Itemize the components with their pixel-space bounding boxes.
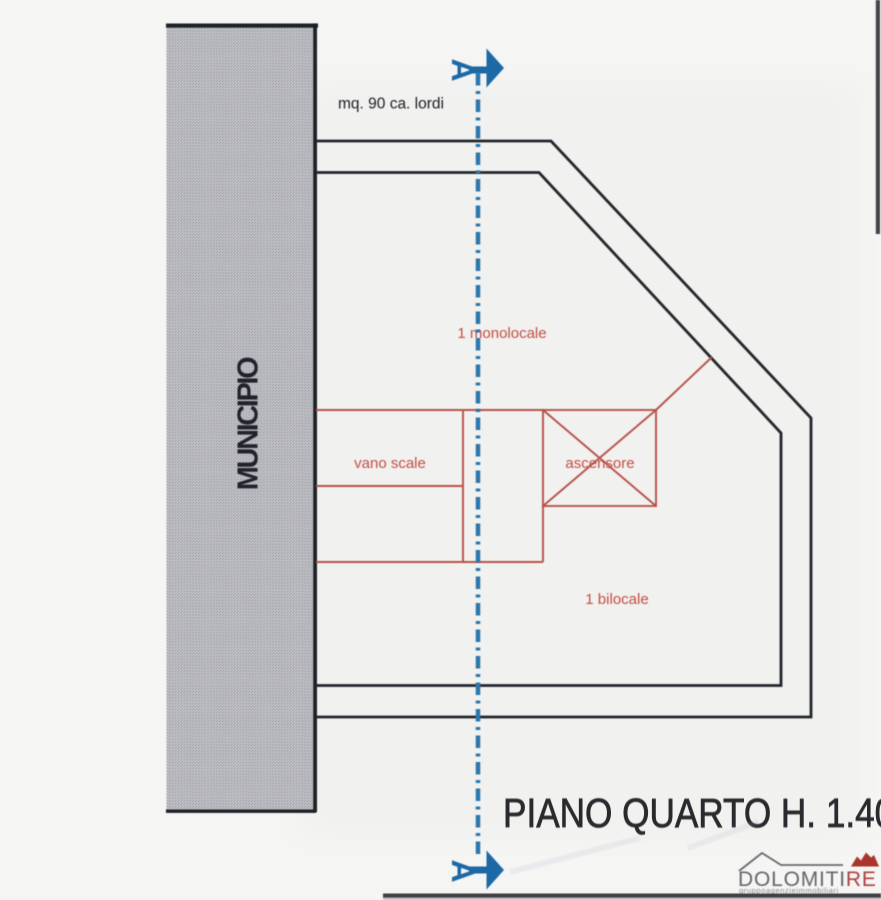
svg-text:A: A (445, 859, 481, 882)
svg-text:PIANO QUARTO H. 1.40: PIANO QUARTO H. 1.40 (503, 792, 881, 837)
svg-text:ascensore: ascensore (565, 455, 634, 472)
svg-text:1 bilocale: 1 bilocale (585, 591, 648, 608)
svg-text:1 monolocale: 1 monolocale (457, 325, 546, 342)
svg-text:mq. 90 ca. lordi: mq. 90 ca. lordi (338, 96, 444, 113)
svg-text:MUNICIPIO: MUNICIPIO (233, 357, 265, 490)
svg-text:A: A (445, 58, 481, 81)
svg-text:vano scale: vano scale (354, 455, 426, 472)
